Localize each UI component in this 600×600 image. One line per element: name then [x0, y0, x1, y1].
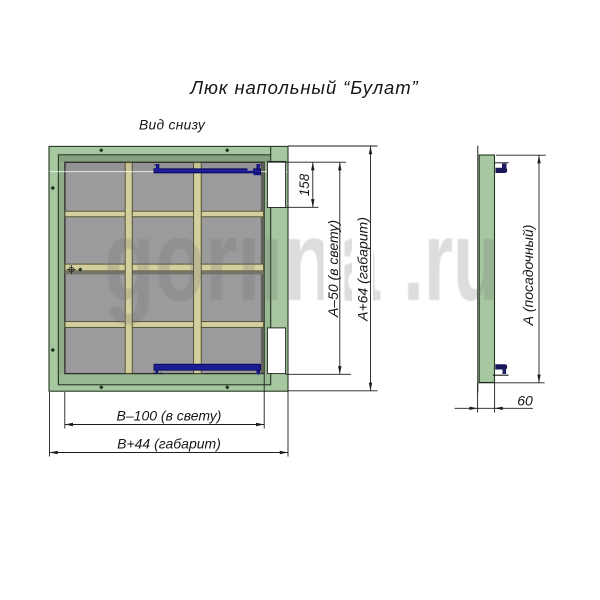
- svg-text:Вид снизу: Вид снизу: [139, 118, 206, 133]
- svg-text:А–50 (в свету): А–50 (в свету): [325, 220, 341, 318]
- svg-text:158: 158: [297, 173, 312, 196]
- svg-text:В–100 (в свету): В–100 (в свету): [117, 408, 222, 424]
- svg-text:60: 60: [517, 393, 533, 409]
- svg-text:В+44 (габарит): В+44 (габарит): [117, 436, 221, 452]
- svg-text:Люк напольный “Булат”: Люк напольный “Булат”: [189, 77, 418, 98]
- svg-text:А (посадочный): А (посадочный): [520, 225, 536, 327]
- svg-text:А+64 (габарит): А+64 (габарит): [355, 217, 371, 322]
